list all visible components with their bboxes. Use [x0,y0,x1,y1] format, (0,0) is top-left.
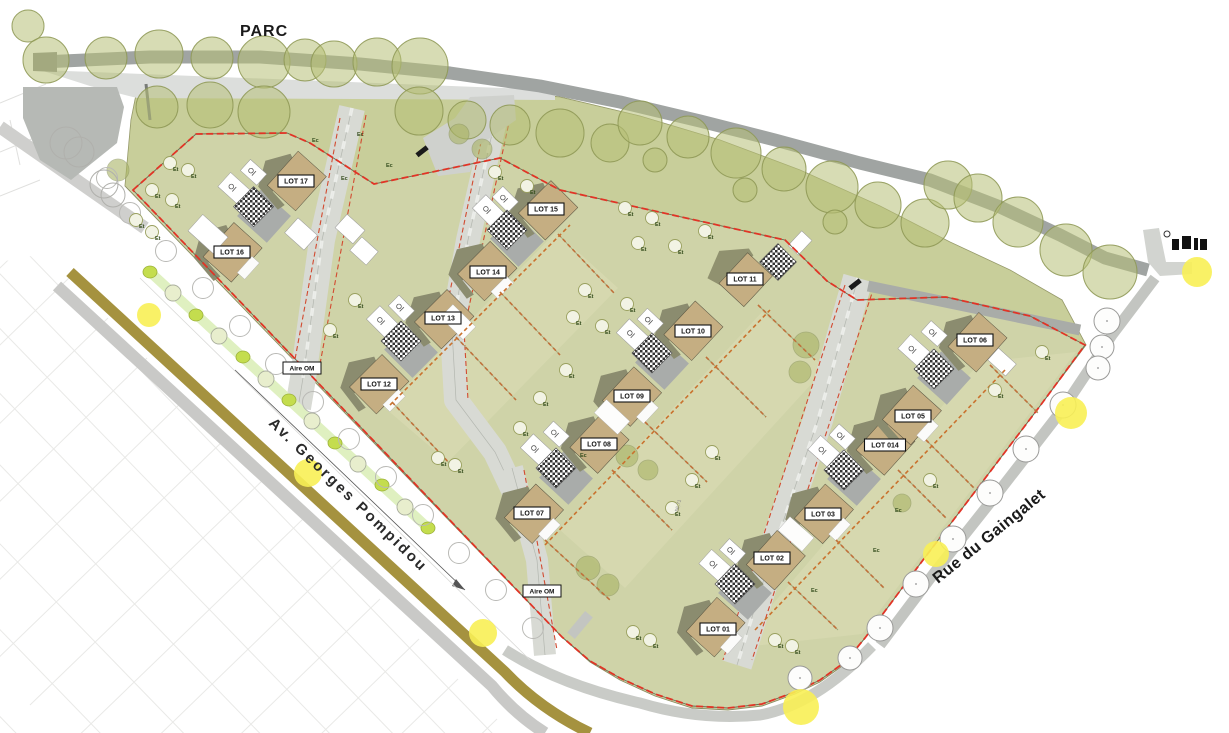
svg-text:Et: Et [139,224,145,230]
svg-text:LOT 01: LOT 01 [706,627,730,634]
svg-text:LOT 09: LOT 09 [620,394,644,401]
svg-text:Ec: Ec [357,132,364,138]
svg-text:LOT 07: LOT 07 [520,511,544,518]
svg-text:Et: Et [795,650,801,656]
svg-text:Ec: Ec [895,508,902,514]
svg-text:Et: Et [441,462,447,468]
svg-text:LOT 03: LOT 03 [811,512,835,519]
svg-text:Aire OM: Aire OM [290,366,315,373]
svg-text:Et: Et [333,334,339,340]
svg-text:Et: Et [155,194,161,200]
svg-text:Ec: Ec [811,588,818,594]
svg-text:LOT 13: LOT 13 [431,316,455,323]
svg-text:Et: Et [530,190,536,196]
svg-text:LOT 12: LOT 12 [367,382,391,389]
svg-text:LOT 05: LOT 05 [901,414,925,421]
svg-text:Ec: Ec [873,548,880,554]
svg-text:LOT 11: LOT 11 [733,277,756,284]
svg-text:LOT 15: LOT 15 [534,207,558,214]
svg-text:LOT 014: LOT 014 [871,443,899,450]
svg-text:LOT 06: LOT 06 [963,338,987,345]
svg-text:Ec: Ec [580,453,587,459]
svg-text:LOT 16: LOT 16 [220,250,244,257]
svg-text:LOT 10: LOT 10 [681,329,705,336]
svg-text:Et: Et [708,235,714,241]
svg-text:Et: Et [175,204,181,210]
svg-text:LOT 17: LOT 17 [284,179,308,186]
svg-text:Et: Et [191,174,197,180]
svg-text:Et: Et [653,644,659,650]
svg-text:Et: Et [1045,356,1051,362]
svg-text:Et: Et [458,469,464,475]
svg-text:Et: Et [173,167,179,173]
svg-text:Et: Et [641,247,647,253]
svg-text:Et: Et [655,222,661,228]
svg-text:Et: Et [630,308,636,314]
svg-text:Et: Et [498,176,504,182]
svg-text:Et: Et [778,644,784,650]
svg-text:Et: Et [605,330,611,336]
svg-text:Et: Et [998,394,1004,400]
svg-text:Et: Et [695,484,701,490]
svg-text:Aire OM: Aire OM [530,589,555,596]
svg-text:Et: Et [523,432,529,438]
svg-text:Et: Et [576,321,582,327]
svg-text:Et: Et [636,636,642,642]
svg-text:Et: Et [155,236,161,242]
svg-text:Et: Et [678,250,684,256]
svg-text:Ec: Ec [386,163,393,169]
svg-text:Et: Et [628,212,634,218]
svg-text:Ec: Ec [341,176,348,182]
svg-text:Et: Et [569,374,575,380]
svg-text:Et: Et [543,402,549,408]
svg-text:Et: Et [715,456,721,462]
svg-text:Ec: Ec [312,138,319,144]
svg-text:Et: Et [933,484,939,490]
svg-text:Et: Et [588,294,594,300]
svg-text:PARC: PARC [240,23,288,40]
svg-text:LOT 08: LOT 08 [587,442,611,449]
svg-text:Et: Et [358,304,364,310]
svg-text:LOT 02: LOT 02 [760,556,784,563]
svg-text:LOT 14: LOT 14 [476,270,500,277]
